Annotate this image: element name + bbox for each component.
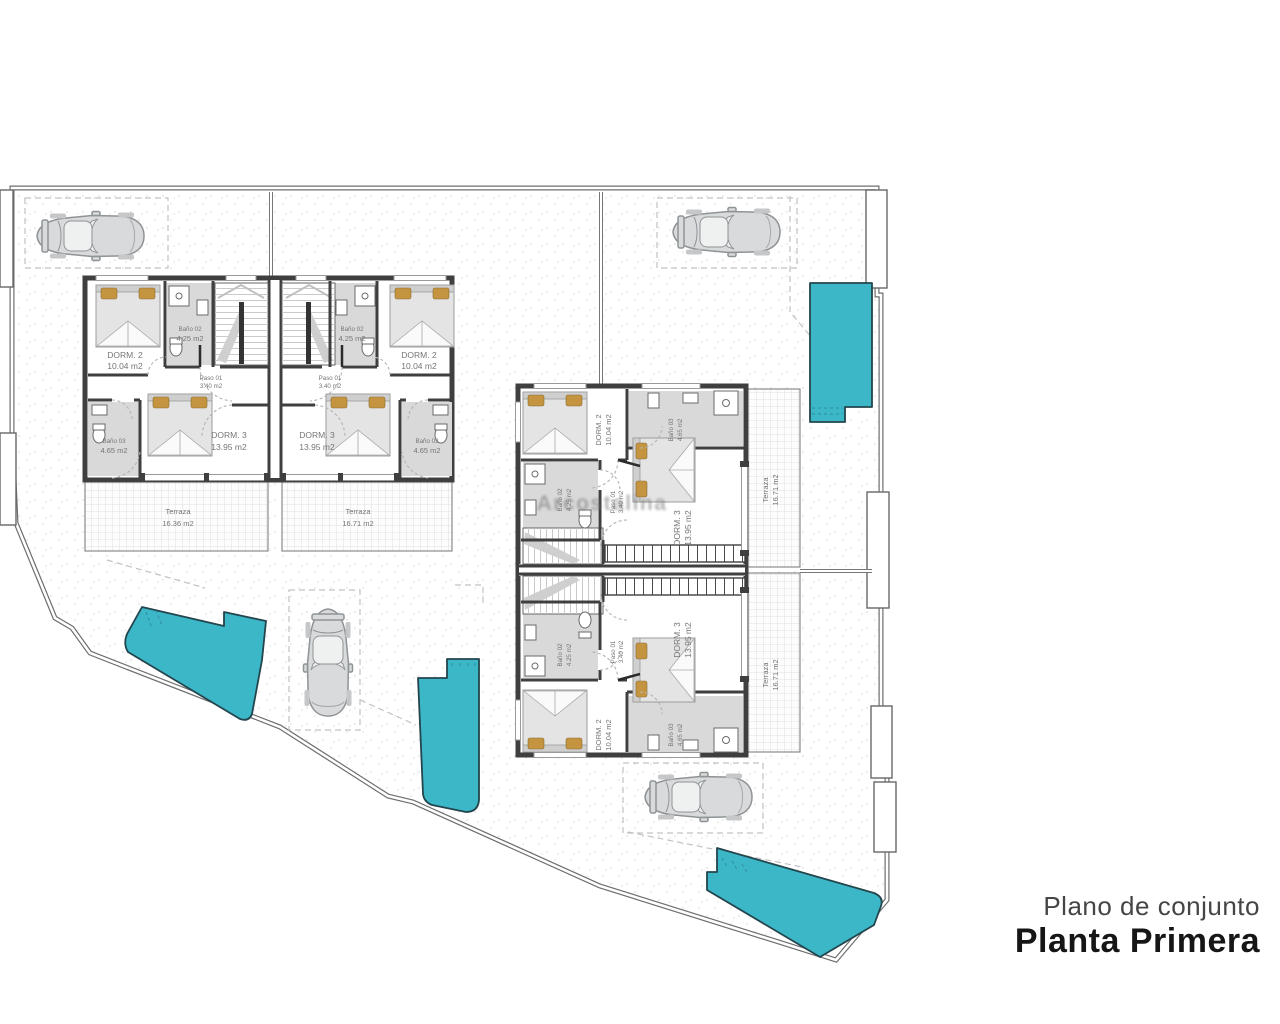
room-label-paso-a: Paso 01 3.40 m2 <box>200 375 223 390</box>
svg-text:Baño 02: Baño 02 <box>178 326 202 333</box>
svg-text:13.95 m2: 13.95 m2 <box>683 622 693 658</box>
svg-text:Terraza: Terraza <box>761 477 770 503</box>
room-label-dorm2-b: DORM. 2 10.04 m2 <box>401 350 437 371</box>
room-label-bano02-b: Baño 02 4.25 m2 <box>338 326 365 343</box>
svg-text:4.65 m2: 4.65 m2 <box>677 418 684 441</box>
svg-text:DORM. 2: DORM. 2 <box>594 414 603 445</box>
boundary-pier <box>866 190 887 288</box>
plan-subtitle: Plano de conjunto <box>1015 892 1260 922</box>
svg-text:10.04 m2: 10.04 m2 <box>604 414 613 445</box>
svg-text:10.04 m2: 10.04 m2 <box>401 361 437 371</box>
svg-text:4.65 m2: 4.65 m2 <box>413 446 440 455</box>
staircase-unit-a <box>215 283 268 365</box>
room-label-paso-rb: Paso 013.40 m2 <box>610 640 625 663</box>
svg-text:4.65 m2: 4.65 m2 <box>100 446 127 455</box>
svg-text:3.40 m2: 3.40 m2 <box>200 383 223 390</box>
svg-text:4.65 m2: 4.65 m2 <box>677 723 684 746</box>
staircase-right-bottom <box>523 576 603 614</box>
staircase-unit-b <box>282 283 335 365</box>
svg-text:Baño 03: Baño 03 <box>668 418 675 442</box>
svg-text:Baño 03: Baño 03 <box>668 723 675 747</box>
room-label-paso-b: Paso 01 3.40 m2 <box>319 375 342 390</box>
svg-text:Terraza: Terraza <box>761 662 770 688</box>
watermark: Arcostalina <box>492 492 712 518</box>
svg-text:Paso 01: Paso 01 <box>610 640 617 663</box>
terrace-label-rt: Terraza16.71 m2 <box>761 474 780 505</box>
room-label-bano02-a: Baño 02 4.25 m2 <box>176 326 203 343</box>
svg-text:Terraza: Terraza <box>165 507 191 516</box>
svg-text:DORM. 3: DORM. 3 <box>672 622 682 658</box>
svg-text:13.95 m2: 13.95 m2 <box>299 442 335 452</box>
svg-text:Terraza: Terraza <box>345 507 371 516</box>
svg-text:Baño 03: Baño 03 <box>102 438 126 445</box>
svg-text:4.25 m2: 4.25 m2 <box>338 334 365 343</box>
svg-text:DORM. 2: DORM. 2 <box>107 350 143 360</box>
svg-text:Baño 02: Baño 02 <box>557 643 564 667</box>
room-label-dorm2-a: DORM. 2 10.04 m2 <box>107 350 143 371</box>
svg-text:13.95 m2: 13.95 m2 <box>211 442 247 452</box>
room-label-bano03-a: Baño 03 4.65 m2 <box>100 438 127 455</box>
svg-text:DORM. 2: DORM. 2 <box>401 350 437 360</box>
svg-text:4.25 m2: 4.25 m2 <box>566 643 573 666</box>
pool-left <box>125 607 266 720</box>
pool-top-right <box>810 283 872 422</box>
terrace-label-rb: Terraza16.71 m2 <box>761 659 780 690</box>
svg-text:Paso 01: Paso 01 <box>200 375 223 382</box>
boundary-pier <box>867 492 889 608</box>
svg-text:DORM. 3: DORM. 3 <box>299 430 335 440</box>
boundary-pier <box>871 706 892 778</box>
boundary-pier <box>874 782 896 852</box>
svg-text:3.40 m2: 3.40 m2 <box>618 640 625 663</box>
room-label-dorm3-rb: DORM. 313.95 m2 <box>672 622 693 658</box>
staircase-right-top <box>523 528 603 564</box>
svg-text:Paso 01: Paso 01 <box>319 375 342 382</box>
site-plan-page: DORM. 2 10.04 m2 Baño 02 4.25 m2 Paso 01… <box>0 0 1280 1024</box>
title-block: Plano de conjunto Planta Primera <box>1015 892 1260 961</box>
plan-title: Planta Primera <box>1015 922 1260 961</box>
svg-text:10.04 m2: 10.04 m2 <box>604 719 613 750</box>
svg-text:16.71 m2: 16.71 m2 <box>771 474 780 505</box>
boundary-pier <box>0 190 13 287</box>
pool-middle <box>418 659 479 812</box>
svg-text:DORM. 2: DORM. 2 <box>594 719 603 750</box>
svg-text:3.40 m2: 3.40 m2 <box>319 383 342 390</box>
svg-text:Baño 03: Baño 03 <box>415 438 439 445</box>
svg-text:DORM. 3: DORM. 3 <box>211 430 247 440</box>
svg-text:10.04 m2: 10.04 m2 <box>107 361 143 371</box>
room-label-dorm2-rt: DORM. 210.04 m2 <box>594 414 613 445</box>
svg-text:16.71 m2: 16.71 m2 <box>771 659 780 690</box>
svg-text:4.25 m2: 4.25 m2 <box>176 334 203 343</box>
room-label-bano03-b: Baño 03 4.65 m2 <box>413 438 440 455</box>
svg-text:16.71 m2: 16.71 m2 <box>342 519 373 528</box>
room-label-dorm2-rb: DORM. 210.04 m2 <box>594 719 613 750</box>
boundary-pier <box>0 433 16 525</box>
svg-text:16.36 m2: 16.36 m2 <box>162 519 193 528</box>
svg-text:Baño 02: Baño 02 <box>340 326 364 333</box>
